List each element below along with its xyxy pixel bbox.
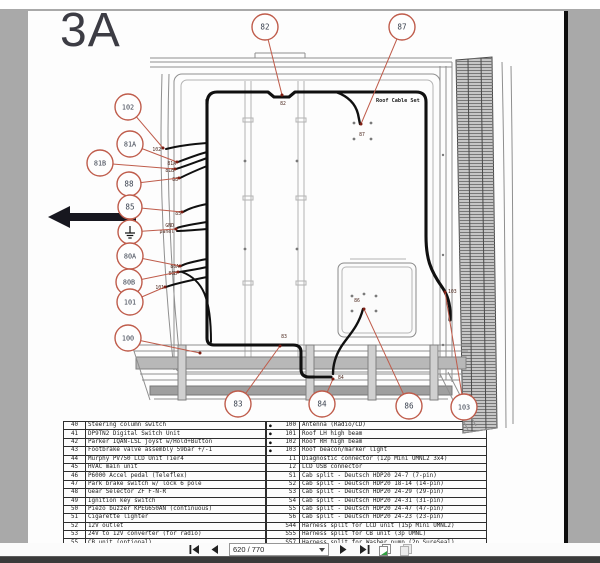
first-page-button[interactable]: [187, 544, 201, 555]
previous-page-button[interactable]: [208, 544, 222, 555]
description-cell: Cab split - Deutsch HDP20 24-23 (23-pin): [300, 514, 487, 522]
export-page-secondary-button[interactable]: [399, 544, 413, 555]
description-cell: Cab split - Deutsch HDP20 24-31 (31-pin): [300, 497, 487, 505]
ref-cell: S5: [267, 505, 300, 513]
export-page-icon: [378, 544, 392, 556]
description-cell: Harness split for LCD unit (15p Mini UMN…: [300, 522, 487, 530]
ref-cell: 48: [64, 489, 86, 497]
table-row: S1Cab split - Deutsch HDP20 24-7 (7-pin): [267, 472, 487, 480]
description-cell: Roof LH high beam: [300, 430, 487, 438]
marker-dot-icon: ●: [269, 440, 272, 447]
description-cell: Cab split - Deutsch HDP20 24-7 (7-pin): [300, 472, 487, 480]
pager-toolbar: 620 / 770: [0, 543, 600, 556]
page-dropdown-caret: [319, 548, 325, 552]
next-page-icon: [339, 545, 347, 554]
ref-cell: ●102: [267, 438, 300, 446]
ref-cell: ●103: [267, 447, 300, 455]
table-row: 5212V outlet: [64, 522, 266, 530]
table-row: 44Murphy PV750 LCD Unit Tier4: [64, 455, 266, 463]
ref-cell: 42: [64, 438, 86, 446]
marker-dot-icon: ●: [269, 431, 272, 438]
ref-cell: I1: [267, 455, 300, 463]
ref-cell: 49: [64, 497, 86, 505]
description-cell: Footbrake valve assembly 59bar +/-1: [86, 447, 266, 455]
ref-cell: S44: [267, 522, 300, 530]
ref-cell: 50: [64, 505, 86, 513]
table-row: S4Cab split - Deutsch HDP20 24-31 (31-pi…: [267, 497, 487, 505]
description-cell: Murphy PV750 LCD Unit Tier4: [86, 455, 266, 463]
ref-cell: 45: [64, 463, 86, 471]
pdf-page: 3A 40Steering column switch41DP9TN2 Digi…: [28, 11, 568, 543]
next-page-button[interactable]: [336, 544, 350, 555]
ref-cell: 53: [64, 531, 86, 539]
table-row: S3Cab split - Deutsch HDP20 24-29 (29-pi…: [267, 489, 487, 497]
description-cell: 12V outlet: [86, 522, 266, 530]
table-row: 50Piezo buzzer KPEG650AN (continuous): [64, 505, 266, 513]
parts-table-left: 40Steering column switch41DP9TN2 Digital…: [63, 421, 266, 543]
description-cell: Piezo buzzer KPEG650AN (continuous): [86, 505, 266, 513]
table-row: 47Park brake switch w/ lock 6 pole: [64, 480, 266, 488]
description-cell: Gear Selector ZF F-N-R: [86, 489, 266, 497]
description-cell: DP9TN2 Digital Switch Unit: [86, 430, 266, 438]
description-cell: P6000 Accel pedal (Teleflex): [86, 472, 266, 480]
description-cell: Harness split for CB unit (3p UMNL): [300, 531, 487, 539]
ref-cell: ●100: [267, 422, 300, 430]
ref-cell: S55: [267, 531, 300, 539]
table-row: 43Footbrake valve assembly 59bar +/-1: [64, 447, 266, 455]
ref-cell: 51: [64, 514, 86, 522]
ref-cell: 41: [64, 430, 86, 438]
table-row: ●102Roof RH high beam: [267, 438, 487, 446]
description-cell: Steering column switch: [86, 422, 266, 430]
bottom-strip: [0, 556, 600, 563]
table-row: S2Cab split - Deutsch HDP20 18-14 (14-pi…: [267, 480, 487, 488]
pdf-viewer-window: 3A 40Steering column switch41DP9TN2 Digi…: [0, 0, 600, 563]
ref-cell: S3: [267, 489, 300, 497]
table-row: 49Ignition key switch: [64, 497, 266, 505]
last-page-button[interactable]: [357, 544, 371, 555]
description-cell: Parker IQAN-LSL joyst w/Hold+Button: [86, 438, 266, 446]
table-row: 45HVAC main unit: [64, 463, 266, 471]
description-cell: Cab split - Deutsch HDP20 24-29 (29-pin): [300, 489, 487, 497]
ref-cell: ●101: [267, 430, 300, 438]
ref-cell: 40: [64, 422, 86, 430]
marker-dot-icon: ●: [269, 423, 272, 430]
description-cell: Diagnostic connector (12p Mini UMNL2 3x4…: [300, 455, 487, 463]
last-page-icon: [359, 545, 370, 554]
description-cell: Cigarette lighter: [86, 514, 266, 522]
first-page-icon: [189, 545, 200, 554]
table-row: 5324V to 12V converter (for radio): [64, 531, 266, 539]
top-strip: [0, 0, 600, 9]
table-row: 48Gear Selector ZF F-N-R: [64, 489, 266, 497]
page-number-input[interactable]: 620 / 770: [229, 543, 329, 556]
ref-cell: 44: [64, 455, 86, 463]
table-row: 40Steering column switch: [64, 422, 266, 430]
table-row: S5Cab split - Deutsch HDP20 24-47 (47-pi…: [267, 505, 487, 513]
description-cell: Roof RH high beam: [300, 438, 487, 446]
ref-cell: 43: [64, 447, 86, 455]
table-row: S6Cab split - Deutsch HDP20 24-23 (23-pi…: [267, 514, 487, 522]
parts-table: 40Steering column switch41DP9TN2 Digital…: [63, 421, 487, 543]
table-row: 51Cigarette lighter: [64, 514, 266, 522]
table-row: S55Harness split for CB unit (3p UMNL): [267, 531, 487, 539]
table-row: ●100Antenna (Radio/CD): [267, 422, 487, 430]
parts-table-right: ●100Antenna (Radio/CD)●101Roof LH high b…: [266, 421, 487, 543]
table-row: I1Diagnostic connector (12p Mini UMNL2 3…: [267, 455, 487, 463]
table-row: 41DP9TN2 Digital Switch Unit: [64, 430, 266, 438]
ref-cell: S6: [267, 514, 300, 522]
table-row: 46P6000 Accel pedal (Teleflex): [64, 472, 266, 480]
ref-cell: S2: [267, 480, 300, 488]
description-cell: Cab split - Deutsch HDP20 18-14 (14-pin): [300, 480, 487, 488]
ref-cell: S1: [267, 472, 300, 480]
ref-cell: S4: [267, 497, 300, 505]
table-row: ●101Roof LH high beam: [267, 430, 487, 438]
table-row: ●103Roof beacon/marker light: [267, 447, 487, 455]
description-cell: Roof beacon/marker light: [300, 447, 487, 455]
description-cell: Cab split - Deutsch HDP20 24-47 (47-pin): [300, 505, 487, 513]
ref-cell: 47: [64, 480, 86, 488]
document-canvas: 3A 40Steering column switch41DP9TN2 Digi…: [0, 9, 600, 543]
ref-cell: 46: [64, 472, 86, 480]
ref-cell: 52: [64, 522, 86, 530]
description-cell: Ignition key switch: [86, 497, 266, 505]
description-cell: Park brake switch w/ lock 6 pole: [86, 480, 266, 488]
page-title: 3A: [60, 9, 121, 55]
export-page-secondary-icon: [399, 544, 413, 556]
table-row: S44Harness split for LCD unit (15p Mini …: [267, 522, 487, 530]
description-cell: LCD USB connector: [300, 463, 487, 471]
marker-dot-icon: ●: [269, 448, 272, 455]
ref-cell: I2: [267, 463, 300, 471]
description-cell: Antenna (Radio/CD): [300, 422, 487, 430]
description-cell: 24V to 12V converter (for radio): [86, 531, 266, 539]
table-row: 42Parker IQAN-LSL joyst w/Hold+Button: [64, 438, 266, 446]
table-row: I2LCD USB connector: [267, 463, 487, 471]
export-page-button[interactable]: [378, 544, 392, 555]
previous-page-icon: [211, 545, 219, 554]
description-cell: HVAC main unit: [86, 463, 266, 471]
page-number-value: 620 / 770: [233, 545, 264, 554]
